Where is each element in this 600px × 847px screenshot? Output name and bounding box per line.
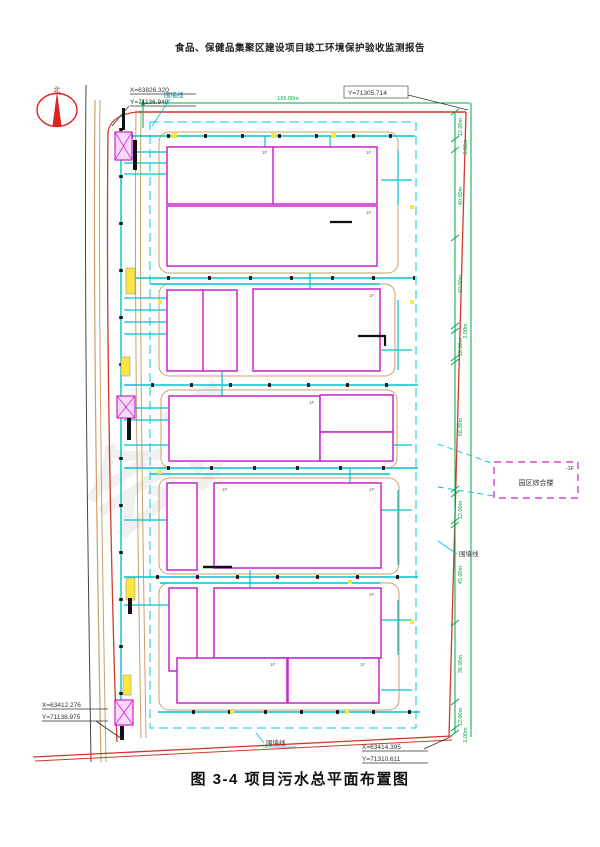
complex-building-callout: 园区综合楼 -1F bbox=[438, 444, 578, 498]
site-plan-drawing: 会员 北 bbox=[0, 0, 600, 770]
dim-label: 36.00m bbox=[458, 654, 464, 673]
coord-text: Y=71305.714 bbox=[348, 90, 387, 97]
coord-text: Y=71138.975 bbox=[42, 714, 81, 721]
floor-mark: 1F bbox=[366, 150, 372, 155]
coord-text: X=63412.276 bbox=[42, 702, 81, 709]
figure-caption: 图 3-4 项目污水总平面布置图 bbox=[0, 768, 600, 789]
fence-label-right: 围墙线 bbox=[459, 549, 479, 558]
callout-top-right: Y=71305.714 bbox=[344, 86, 468, 110]
coord-text: X=63414.395 bbox=[362, 744, 401, 751]
road-left bbox=[85, 85, 146, 762]
fence-label-top: 围墙线 bbox=[164, 90, 184, 99]
floor-mark: 1F bbox=[360, 662, 366, 667]
dim-label: 40.00m bbox=[458, 186, 464, 205]
compass-icon: 北 bbox=[37, 86, 77, 127]
dim-label: 45.00m bbox=[458, 565, 464, 584]
dim-label: 2.00m bbox=[463, 323, 469, 339]
buildings bbox=[167, 147, 393, 703]
dim-label: 12.00m bbox=[458, 500, 464, 519]
floor-mark: 1F bbox=[222, 487, 228, 492]
callout-bottom-left: X=63412.276 Y=71138.975 bbox=[42, 702, 122, 739]
coord-text: Y=71136.948 bbox=[130, 99, 169, 106]
dim-label: 1.00m bbox=[463, 727, 469, 743]
complex-floor-label: -1F bbox=[566, 466, 575, 472]
dim-label: 12.00m bbox=[458, 117, 464, 136]
floor-mark: 1F bbox=[309, 400, 315, 405]
dim-label: 12.00m bbox=[458, 707, 464, 726]
dim-label: 5.00m bbox=[463, 139, 469, 155]
floor-mark: 1F bbox=[262, 150, 268, 155]
top-dimension-label: 165.00m bbox=[277, 96, 299, 102]
fence-label-bottom: 围墙线 bbox=[266, 738, 286, 747]
compass-north-label: 北 bbox=[54, 86, 61, 94]
floor-mark: 1F bbox=[369, 293, 375, 298]
report-page: 食品、保健品集聚区建设项目竣工环境保护验收监测报告 会员 北 bbox=[0, 0, 600, 847]
dim-label: 58.00m bbox=[458, 417, 464, 436]
dim-label: 12.00m bbox=[458, 337, 464, 356]
floor-mark: 1F bbox=[369, 592, 375, 597]
complex-building-label: 园区综合楼 bbox=[519, 478, 554, 487]
floor-mark: 1F bbox=[366, 210, 372, 215]
coord-text: Y=71310.611 bbox=[362, 756, 401, 763]
dim-label: 40.00m bbox=[458, 274, 464, 293]
floor-mark: 1F bbox=[270, 662, 276, 667]
floor-mark: 1F bbox=[369, 487, 375, 492]
